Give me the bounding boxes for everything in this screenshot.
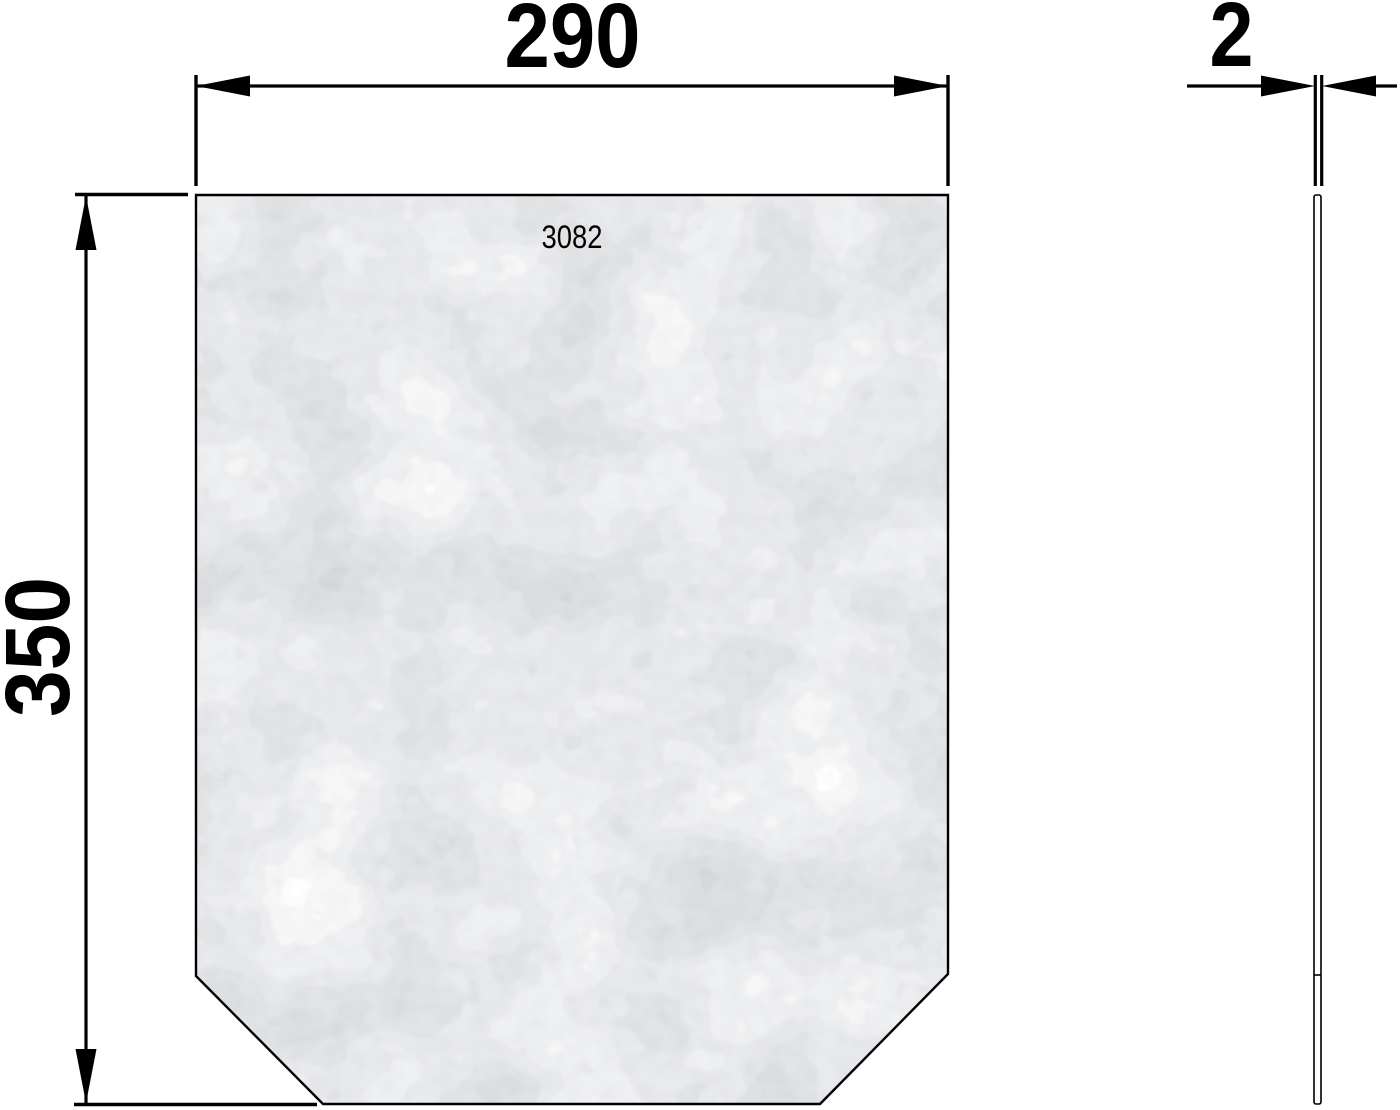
- svg-text:2: 2: [1210, 0, 1254, 86]
- svg-text:3082: 3082: [542, 219, 603, 255]
- svg-text:290: 290: [505, 0, 641, 87]
- svg-text:350: 350: [0, 577, 89, 717]
